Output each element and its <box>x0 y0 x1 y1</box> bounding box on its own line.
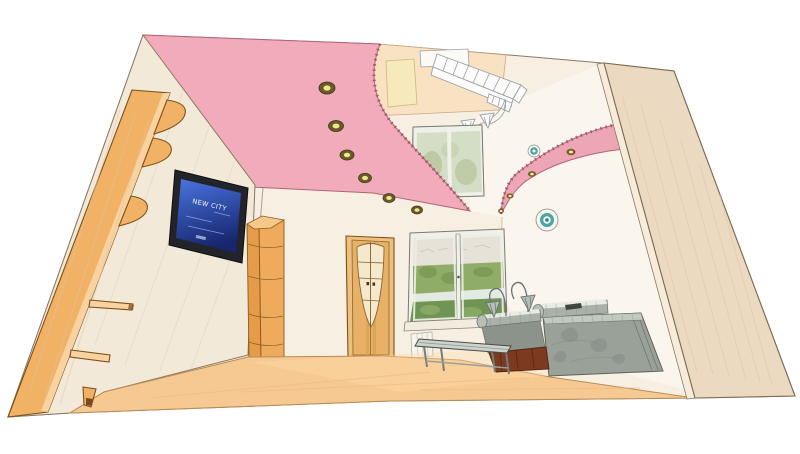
tree-blob <box>419 266 437 278</box>
corner-shelf-column <box>247 216 284 367</box>
door <box>346 236 394 358</box>
tree-blob <box>473 267 493 277</box>
bolster-cap <box>477 315 487 328</box>
door-handle <box>373 283 376 286</box>
foliage <box>455 159 477 185</box>
high-window <box>386 59 417 107</box>
spotlight-core <box>415 208 420 212</box>
interior-render: NEW CITY <box>0 0 800 454</box>
wing-light-core <box>500 210 503 212</box>
tree-blob <box>458 307 482 317</box>
spotlight-core <box>333 124 340 129</box>
spotlight-core <box>386 196 392 200</box>
plank-tip <box>128 304 134 310</box>
door-handle <box>367 282 370 285</box>
plate-large-center <box>545 218 549 222</box>
wing-light-core <box>530 173 534 176</box>
spotlight-core <box>344 153 350 157</box>
spotlight-core <box>323 85 330 90</box>
tree-blob <box>420 305 440 315</box>
wing-light-core <box>508 195 511 197</box>
plate-small-center <box>533 150 536 153</box>
column-front <box>259 220 284 359</box>
bracket-foot <box>86 398 93 406</box>
window-handle <box>457 276 460 279</box>
room-scene: NEW CITY <box>0 0 800 454</box>
wing-light-core <box>569 151 573 154</box>
spotlight-core <box>362 176 368 180</box>
